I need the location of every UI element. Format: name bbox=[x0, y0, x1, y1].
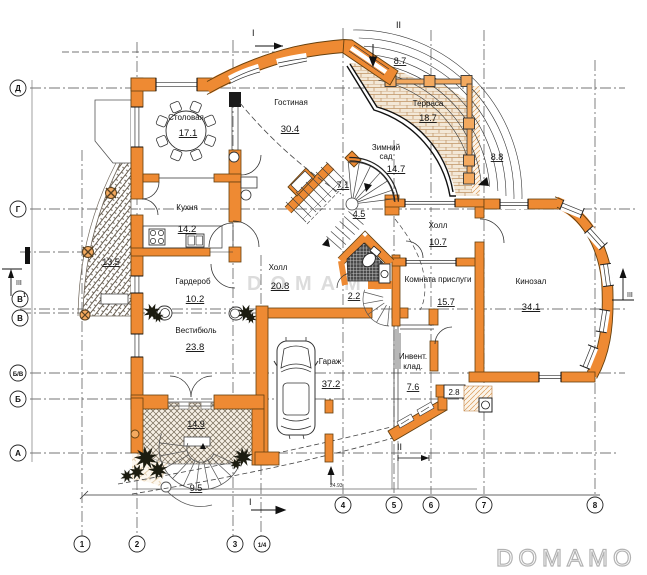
svg-text:15.7: 15.7 bbox=[437, 297, 455, 307]
svg-text:Зимний: Зимний bbox=[372, 143, 400, 152]
svg-text:Столовая: Столовая bbox=[168, 113, 204, 122]
svg-text:Инвент.: Инвент. bbox=[399, 352, 427, 361]
svg-text:7.1: 7.1 bbox=[337, 180, 350, 190]
svg-text:18.7: 18.7 bbox=[419, 113, 437, 123]
svg-text:Б/В: Б/В bbox=[13, 372, 24, 378]
svg-text:Д: Д bbox=[15, 84, 21, 93]
svg-text:III: III bbox=[627, 292, 633, 299]
svg-text:2.2: 2.2 bbox=[348, 291, 361, 301]
svg-text:сад: сад bbox=[379, 152, 392, 161]
svg-text:Гараж: Гараж bbox=[319, 357, 342, 366]
svg-text:1: 1 bbox=[80, 540, 85, 549]
svg-text:14.2: 14.2 bbox=[178, 224, 197, 235]
svg-text:клад.: клад. bbox=[403, 362, 423, 371]
svg-text:А: А bbox=[15, 449, 21, 458]
svg-text:Гостиная: Гостиная bbox=[274, 98, 308, 107]
svg-text:Холл: Холл bbox=[269, 263, 288, 272]
svg-text:III: III bbox=[16, 280, 22, 287]
svg-text:4: 4 bbox=[341, 501, 346, 510]
svg-text:I: I bbox=[249, 497, 252, 507]
svg-text:II: II bbox=[396, 20, 401, 30]
svg-text:Комната прислуги: Комната прислуги bbox=[405, 275, 472, 284]
svg-text:10.7: 10.7 bbox=[429, 237, 447, 247]
svg-text:8.7: 8.7 bbox=[394, 56, 407, 66]
svg-text:Кинозал: Кинозал bbox=[516, 277, 547, 286]
svg-text:II: II bbox=[397, 442, 402, 452]
svg-text:Б: Б bbox=[15, 395, 21, 404]
svg-text:13.5: 13.5 bbox=[102, 257, 120, 267]
svg-text:7.6: 7.6 bbox=[407, 382, 420, 392]
svg-text:37.2: 37.2 bbox=[322, 379, 341, 390]
svg-text:Кухня: Кухня bbox=[176, 203, 197, 212]
svg-text:2: 2 bbox=[135, 540, 140, 549]
svg-text:10.2: 10.2 bbox=[186, 294, 205, 305]
svg-text:8.8: 8.8 bbox=[491, 152, 504, 162]
svg-text:I: I bbox=[252, 28, 255, 38]
svg-text:23.8: 23.8 bbox=[186, 342, 205, 353]
svg-text:Вестибюль: Вестибюль bbox=[175, 326, 216, 335]
svg-text:30.4: 30.4 bbox=[281, 124, 300, 135]
svg-text:1: 1 bbox=[23, 293, 26, 299]
svg-text:17.1: 17.1 bbox=[179, 128, 198, 139]
svg-text:9.5: 9.5 bbox=[190, 483, 203, 493]
svg-text:4.5: 4.5 bbox=[353, 209, 366, 219]
svg-text:2.8: 2.8 bbox=[448, 388, 460, 397]
svg-text:DOMAMO: DOMAMO bbox=[496, 545, 637, 572]
svg-text:6: 6 bbox=[429, 501, 434, 510]
svg-text:3: 3 bbox=[233, 540, 238, 549]
svg-text:В: В bbox=[17, 314, 23, 323]
svg-text:14.7: 14.7 bbox=[387, 164, 406, 175]
svg-text:8: 8 bbox=[593, 501, 598, 510]
svg-text:Терраса: Терраса bbox=[413, 99, 444, 108]
svg-text:Холл: Холл bbox=[429, 221, 448, 230]
svg-text:7: 7 bbox=[482, 501, 487, 510]
svg-text:1/4: 1/4 bbox=[258, 543, 267, 549]
svg-text:Г: Г bbox=[16, 205, 21, 214]
svg-text:24.93: 24.93 bbox=[330, 483, 343, 489]
svg-text:5: 5 bbox=[392, 501, 397, 510]
svg-text:Гардероб: Гардероб bbox=[175, 277, 211, 286]
svg-text:14.9: 14.9 bbox=[187, 419, 205, 429]
svg-text:34.1: 34.1 bbox=[522, 302, 541, 313]
svg-text:20.8: 20.8 bbox=[271, 281, 290, 292]
